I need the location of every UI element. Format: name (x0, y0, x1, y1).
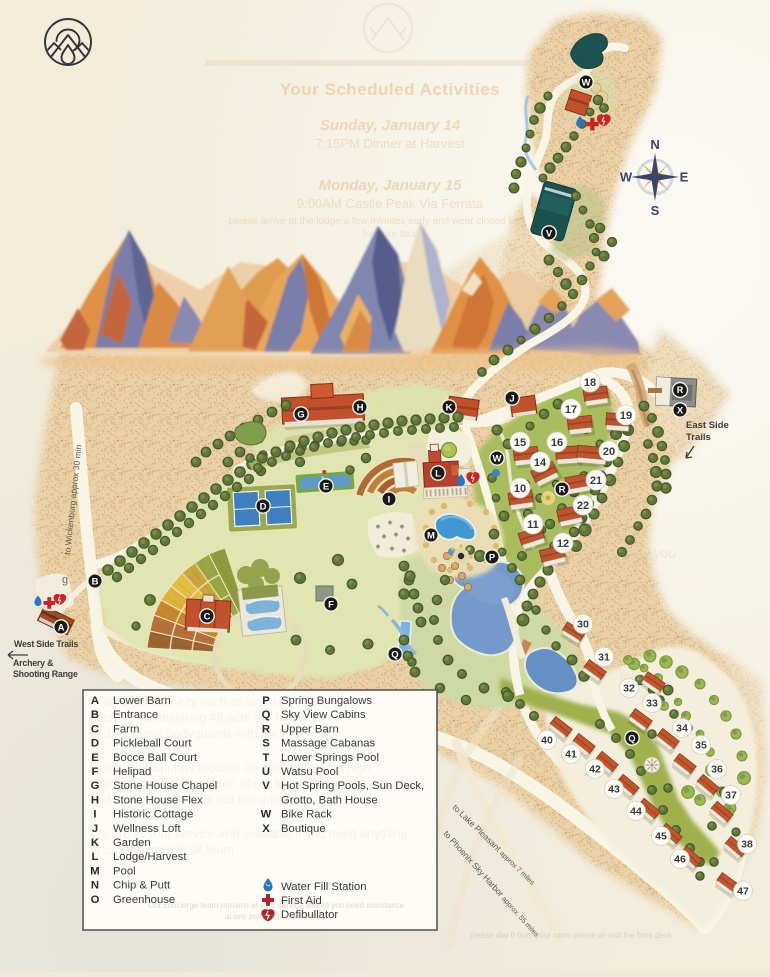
svg-text:Castle Hot Springs focuses on: Castle Hot Springs focuses on availabili… (90, 761, 371, 775)
svg-text:K: K (446, 402, 453, 413)
svg-text:42: 42 (589, 764, 601, 776)
svg-text:Historic Cottage: Historic Cottage (113, 809, 193, 821)
svg-text:and will continue to be out to: and will continue to be out too quietly (90, 793, 296, 807)
svg-text:36: 36 (711, 764, 723, 776)
svg-text:G: G (297, 409, 304, 420)
svg-text:standard for the protection of: standard for the protection of our team … (90, 777, 358, 791)
svg-text:and for those bodyguards with: and for those bodyguards with the Fed (90, 727, 303, 741)
svg-text:37: 37 (725, 790, 737, 802)
svg-text:B: B (92, 576, 99, 587)
svg-text:X: X (677, 405, 684, 416)
svg-text:Shooting Range: Shooting Range (13, 669, 78, 679)
svg-text:Grotto, Bath House: Grotto, Bath House (281, 794, 378, 806)
svg-text:Chip & Putt: Chip & Putt (113, 880, 171, 892)
svg-text:11: 11 (527, 519, 539, 531)
svg-text:M: M (427, 530, 435, 541)
svg-text:Trails: Trails (686, 432, 711, 443)
svg-text:relax: relax (620, 669, 647, 683)
svg-text:Our concierge team remains at: Our concierge team remains at your servi… (148, 901, 405, 910)
svg-text:Pool: Pool (113, 865, 136, 877)
svg-text:P: P (489, 552, 496, 563)
svg-text:We are at your service and ava: We are at your service and available if … (90, 827, 407, 841)
svg-text:L: L (435, 468, 441, 479)
svg-text:40: 40 (541, 735, 553, 747)
svg-text:I: I (388, 494, 391, 505)
svg-text:34: 34 (676, 723, 688, 735)
svg-text:Water Fill Station: Water Fill Station (281, 881, 367, 893)
svg-text:W: W (493, 453, 502, 464)
svg-text:33: 33 (646, 698, 658, 710)
svg-text:10: 10 (514, 483, 526, 495)
svg-text:E: E (323, 481, 329, 492)
svg-text:Archery &: Archery & (13, 658, 54, 668)
svg-text:F: F (328, 599, 334, 610)
svg-text:W: W (261, 809, 272, 821)
svg-text:18: 18 (584, 377, 596, 389)
svg-text:E: E (680, 170, 689, 185)
svg-text:S: S (651, 203, 660, 218)
svg-text:West Side Trails: West Side Trails (14, 639, 78, 649)
svg-text:Q: Q (391, 649, 398, 660)
svg-text:D: D (260, 501, 267, 512)
svg-text:W: W (620, 170, 633, 185)
svg-text:47: 47 (737, 886, 749, 898)
svg-text:such as this inspiring 48 acre: such as this inspiring 48 acre the film … (90, 711, 326, 725)
svg-text:44: 44 (630, 806, 642, 818)
svg-text:35: 35 (695, 740, 707, 752)
svg-text:at any point of the adventure: at any point of the adventure (225, 912, 327, 921)
svg-text:Q: Q (628, 733, 635, 744)
svg-text:O: O (91, 894, 100, 906)
svg-text:I: I (93, 809, 96, 821)
svg-text:38: 38 (741, 839, 753, 851)
svg-text:16: 16 (551, 437, 563, 449)
svg-text:W: W (582, 77, 591, 88)
svg-text:31: 31 (598, 652, 610, 664)
svg-text:please dial 0 from your room p: please dial 0 from your room phone or vi… (470, 931, 673, 940)
svg-text:g: g (62, 574, 68, 586)
svg-text:45: 45 (655, 831, 667, 843)
svg-text:or call the front desk team: or call the front desk team (90, 843, 234, 857)
svg-text:30: 30 (577, 619, 589, 631)
svg-text:19: 19 (620, 410, 632, 422)
svg-text:R: R (559, 484, 566, 495)
svg-text:46: 46 (674, 854, 686, 866)
svg-text:14: 14 (534, 457, 547, 469)
svg-text:R: R (677, 385, 684, 395)
svg-text:Bike Rack: Bike Rack (281, 809, 332, 821)
svg-text:N: N (650, 137, 659, 152)
svg-text:21: 21 (590, 475, 602, 487)
svg-text:East Side: East Side (686, 420, 729, 431)
svg-text:20: 20 (603, 446, 615, 458)
svg-text:C: C (204, 611, 211, 622)
svg-text:15: 15 (514, 437, 526, 449)
svg-text:M: M (90, 865, 99, 877)
svg-text:41: 41 (565, 749, 577, 761)
svg-text:wet you: wet you (628, 545, 676, 561)
svg-text:17: 17 (565, 404, 577, 416)
svg-text:J: J (509, 393, 514, 404)
svg-text:A: A (58, 622, 65, 633)
svg-text:in an unfamiliar city such as: in an unfamiliar city such as we are in … (90, 695, 333, 709)
svg-text:V: V (546, 228, 553, 239)
svg-text:H: H (357, 402, 364, 413)
svg-text:22: 22 (577, 500, 589, 512)
svg-text:32: 32 (623, 683, 635, 695)
svg-text:43: 43 (608, 784, 620, 796)
svg-text:N: N (91, 880, 99, 892)
svg-text:12: 12 (557, 538, 569, 550)
